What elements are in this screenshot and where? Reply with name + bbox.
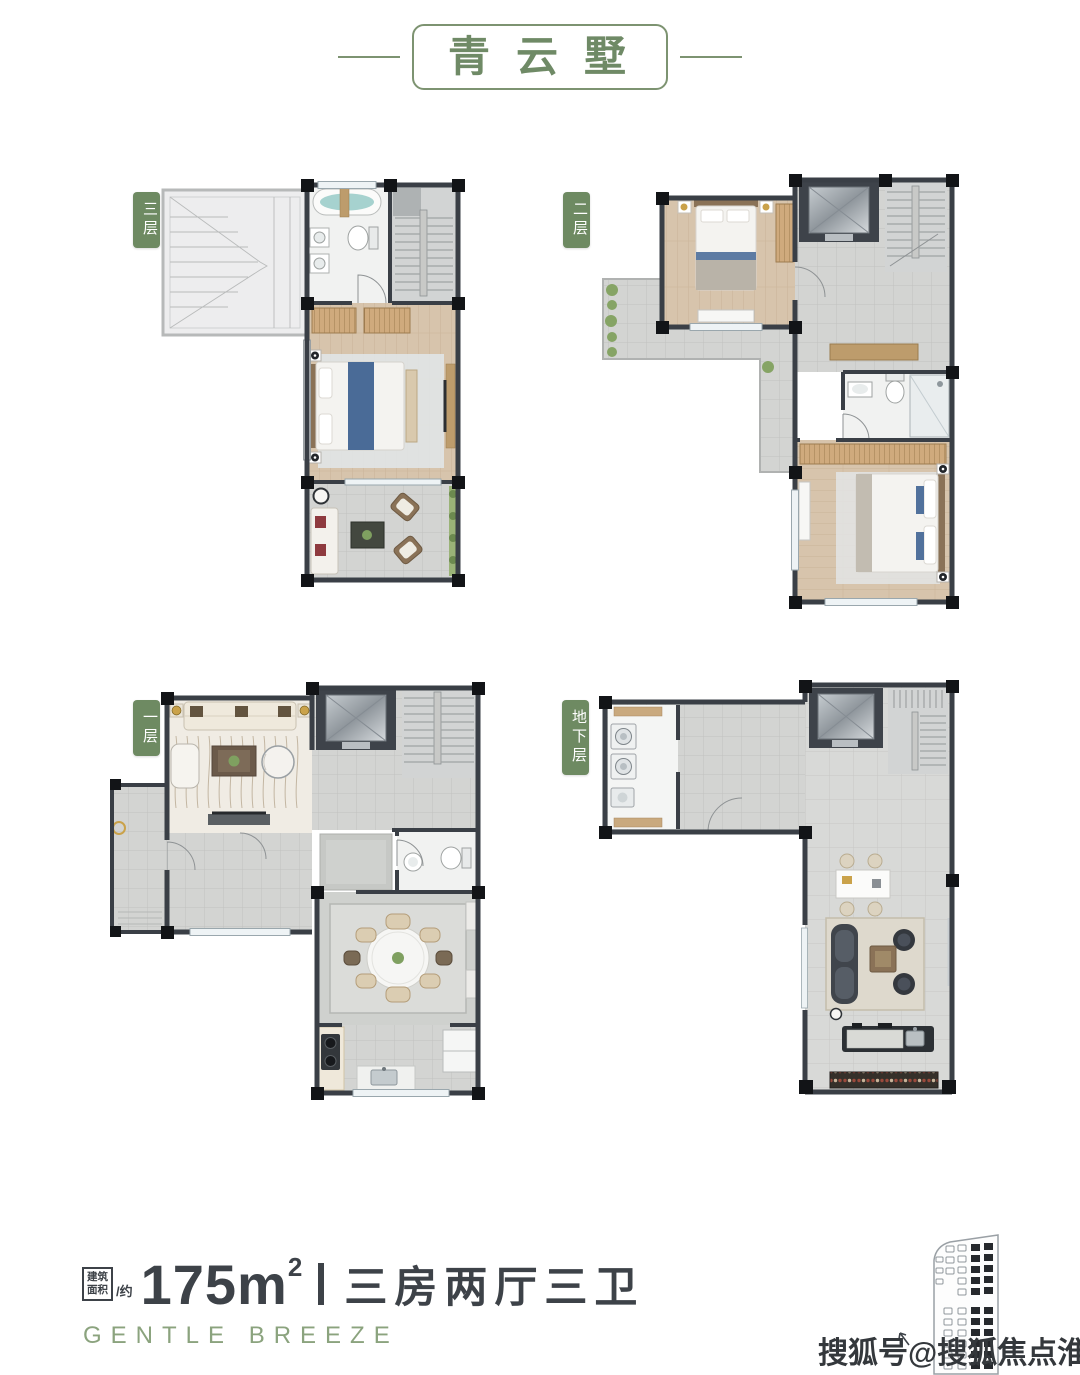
outdoor-table-icon <box>351 522 384 548</box>
area-number: 175m <box>141 1253 288 1316</box>
title-line-right <box>680 56 742 58</box>
coffee-table-icon <box>212 746 256 776</box>
floor-badge-basement: 地下层 <box>562 700 589 775</box>
sink-icon <box>848 382 872 397</box>
area-value: 175m2 <box>141 1256 303 1309</box>
shelf-icon <box>614 707 662 716</box>
area-approx: /约 <box>116 1281 133 1300</box>
floor-plan-3f <box>100 172 500 617</box>
divider-bar <box>318 1263 324 1305</box>
sink-island-icon <box>357 1066 415 1090</box>
elevator-icon <box>316 688 396 750</box>
layout-text: 三房两厅三卫 <box>344 1268 644 1309</box>
area-prefix-line2: 面积 <box>87 1284 108 1297</box>
console-table-icon <box>830 344 918 360</box>
window <box>318 182 376 189</box>
stove-icon <box>321 1034 340 1070</box>
wine-rack-icon <box>830 1072 938 1088</box>
header: 青云墅 <box>0 24 1080 90</box>
wardrobe-icon <box>312 308 356 333</box>
kitchen <box>317 1025 478 1093</box>
window <box>190 929 290 936</box>
floor-plan-basement <box>590 680 990 1140</box>
wardrobe-icon <box>776 204 793 262</box>
elevator-icon <box>809 688 883 748</box>
floor-lamp-icon <box>831 1009 842 1020</box>
window <box>353 1090 449 1097</box>
bar-island-icon <box>842 1023 934 1052</box>
sofa-icon <box>831 924 858 1004</box>
floor-plan-1f <box>110 680 530 1105</box>
utility-sink-icon <box>611 788 634 807</box>
staircase-icon <box>402 688 476 778</box>
area-info: 建筑 面积 /约 175m2 三房两厅三卫 <box>82 1256 644 1309</box>
shelf-icon <box>614 818 662 827</box>
staircase-icon <box>885 180 947 272</box>
elevator-icon <box>799 180 879 242</box>
wardrobe-icon <box>800 444 946 464</box>
wardrobe-icon <box>364 308 410 333</box>
toilet-icon <box>886 373 904 403</box>
bed-icon <box>309 362 417 450</box>
window <box>825 599 917 606</box>
tagline: GENTLE BREEZE <box>83 1322 399 1350</box>
sink-icon <box>404 853 422 871</box>
tv-console-icon <box>208 812 270 826</box>
poster-page: 青云墅 三层 二层 一层 地下层 <box>0 0 1080 1375</box>
area-prefix-line1: 建筑 <box>87 1271 108 1284</box>
chaise-icon <box>171 744 199 788</box>
entry-porch <box>112 785 167 932</box>
window <box>690 324 762 331</box>
hall-floor <box>167 833 312 930</box>
shower-icon <box>910 375 949 437</box>
dresser-icon <box>799 482 810 540</box>
desk-icon <box>698 310 754 322</box>
bathtub-icon <box>313 187 381 217</box>
armchair-icon <box>262 746 294 778</box>
dining-room <box>317 892 478 1025</box>
area-superscript: 2 <box>288 1252 302 1282</box>
title-line-left <box>338 56 400 58</box>
toilet-icon <box>348 226 378 250</box>
roof-outline <box>163 190 307 335</box>
page-title: 青云墅 <box>412 24 668 90</box>
window <box>802 928 808 1008</box>
landing-mat <box>320 834 392 890</box>
fridge-icon <box>443 1030 476 1072</box>
area-prefix-box: 建筑 面积 <box>82 1267 113 1300</box>
window <box>792 490 799 570</box>
sofa-icon <box>184 702 296 730</box>
watermark-text: 搜狐号@搜狐焦点淮南站 <box>818 1328 1080 1372</box>
sliding-door <box>345 479 441 485</box>
bed-icon <box>856 474 945 572</box>
coffee-table-icon <box>870 946 896 972</box>
floor-badge-2f: 二层 <box>563 192 590 248</box>
floor-plan-2f <box>590 172 990 632</box>
staircase-icon <box>888 688 948 774</box>
toilet-icon <box>441 847 471 869</box>
